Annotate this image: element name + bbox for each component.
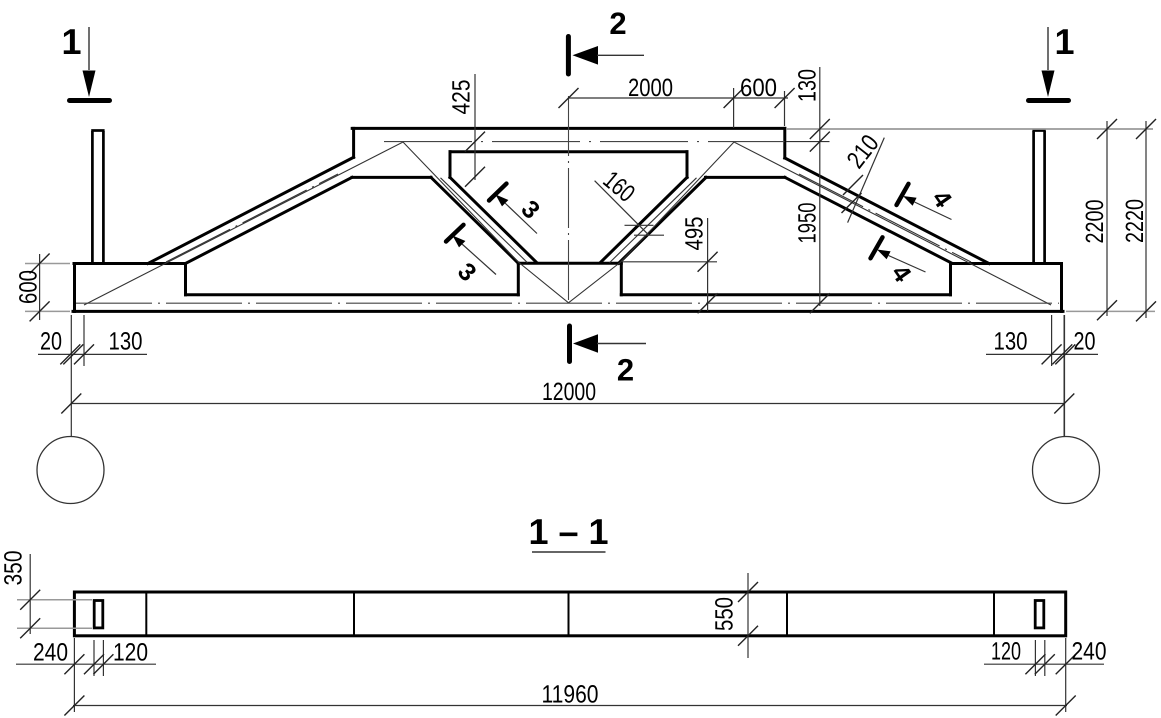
svg-text:3: 3: [452, 257, 482, 287]
svg-text:4: 4: [926, 185, 957, 213]
svg-text:210: 210: [842, 130, 885, 174]
svg-text:160: 160: [598, 166, 641, 208]
svg-text:550: 550: [711, 597, 739, 631]
svg-text:1950: 1950: [794, 203, 822, 244]
svg-text:425: 425: [448, 80, 476, 115]
svg-text:20: 20: [40, 328, 62, 356]
svg-text:2: 2: [617, 353, 634, 388]
svg-text:120: 120: [991, 638, 1021, 666]
svg-text:20: 20: [1074, 328, 1096, 356]
svg-text:130: 130: [794, 69, 822, 102]
svg-text:130: 130: [994, 328, 1028, 356]
svg-text:1 – 1: 1 – 1: [528, 511, 608, 552]
svg-text:240: 240: [1072, 638, 1107, 666]
svg-text:130: 130: [109, 328, 143, 356]
svg-text:11960: 11960: [542, 681, 599, 709]
svg-text:3: 3: [515, 195, 545, 225]
svg-text:2220: 2220: [1121, 199, 1149, 243]
svg-text:240: 240: [33, 639, 68, 667]
svg-text:1: 1: [1054, 21, 1074, 62]
svg-text:495: 495: [681, 217, 709, 251]
svg-text:1: 1: [61, 21, 81, 62]
svg-text:2: 2: [609, 6, 626, 41]
svg-text:600: 600: [15, 270, 43, 304]
svg-text:2200: 2200: [1081, 200, 1109, 244]
svg-text:4: 4: [886, 260, 917, 288]
svg-text:350: 350: [0, 551, 28, 586]
svg-text:2000: 2000: [628, 74, 673, 102]
svg-text:120: 120: [113, 639, 148, 667]
svg-text:12000: 12000: [542, 378, 596, 406]
svg-text:600: 600: [740, 74, 777, 102]
